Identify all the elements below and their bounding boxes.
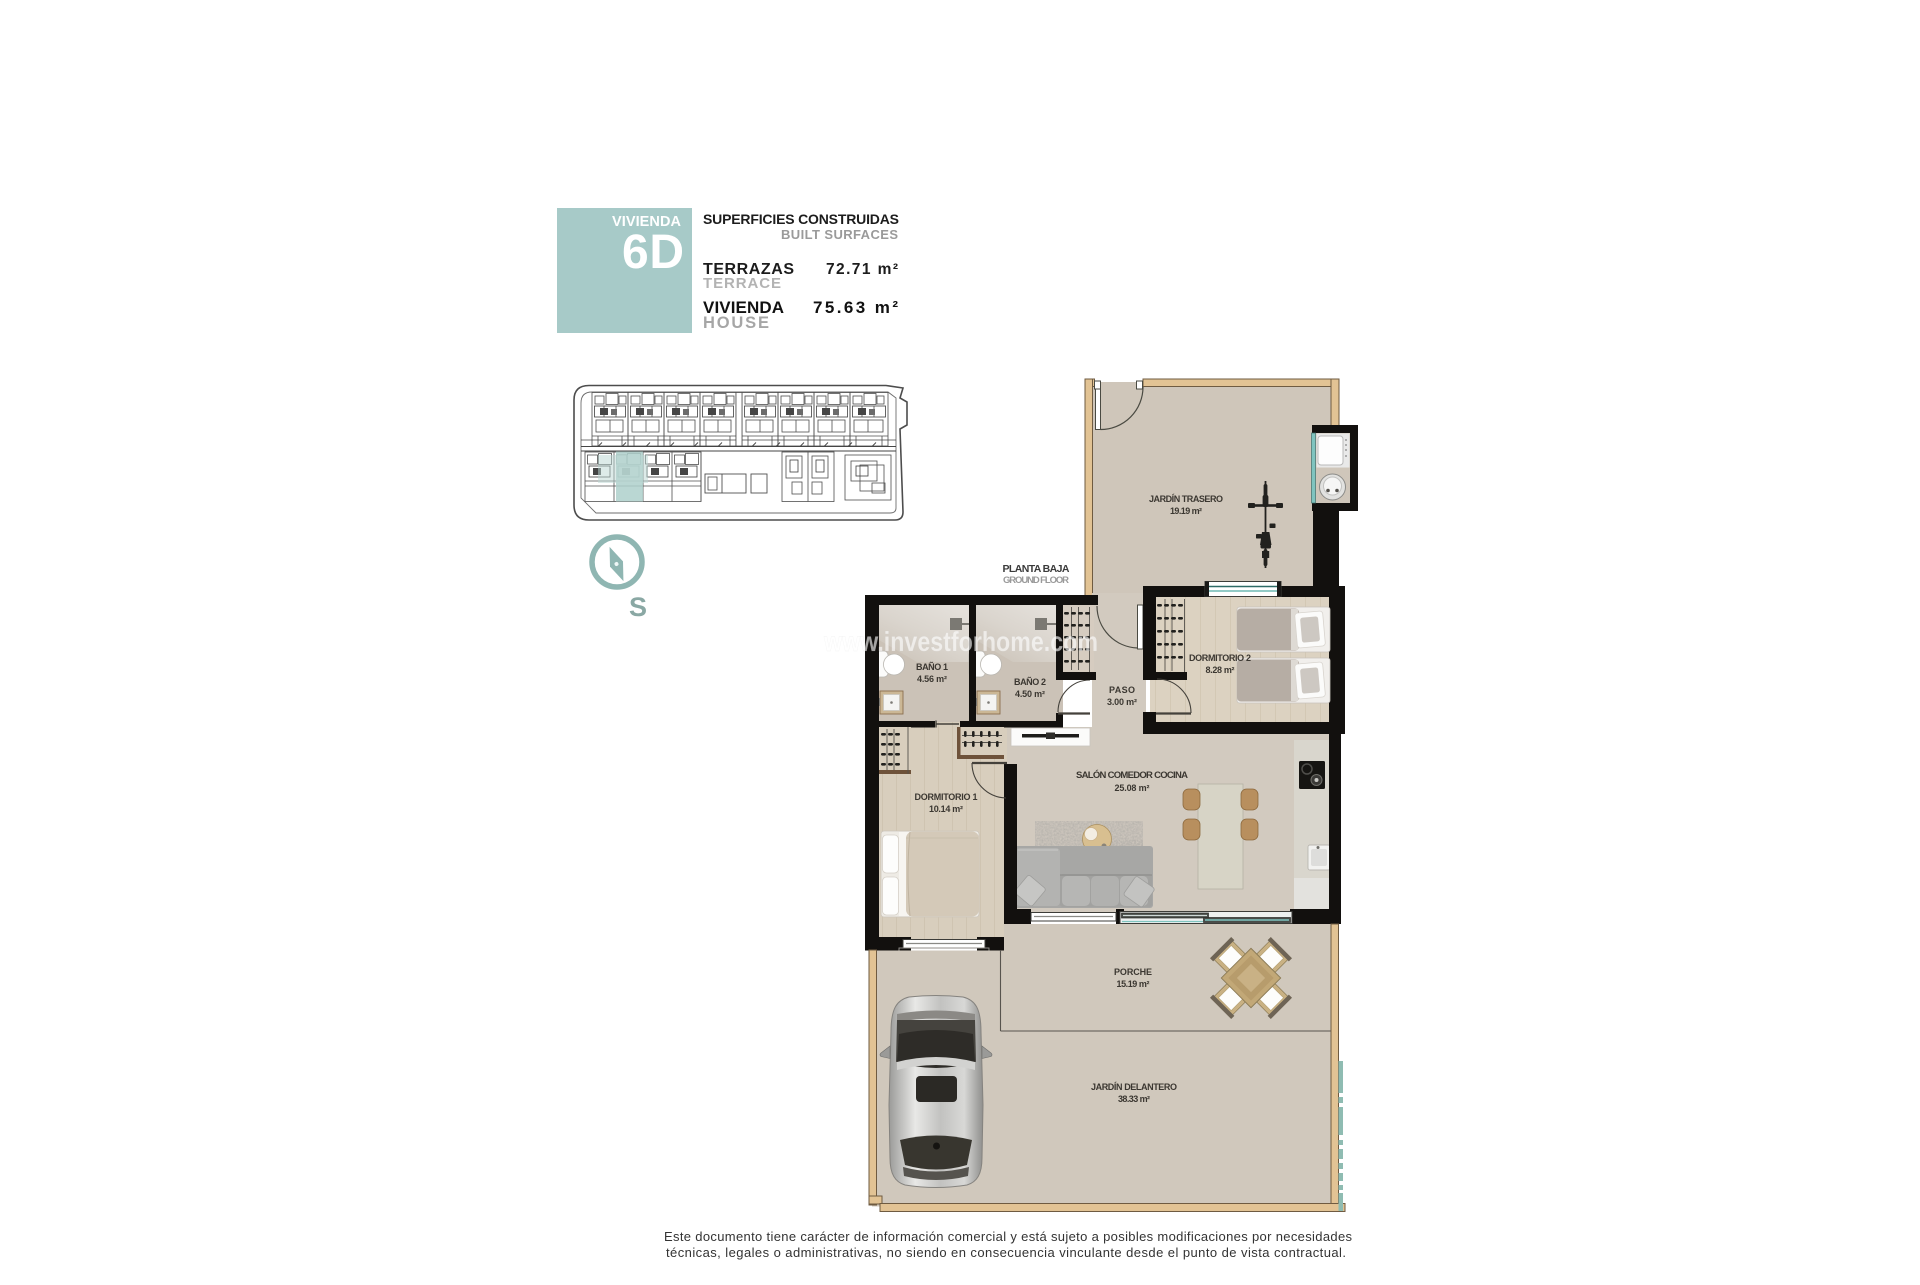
svg-text:www.investforhome.com: www.investforhome.com — [823, 626, 1098, 657]
svg-text:TERRACE: TERRACE — [703, 275, 781, 292]
svg-text:HOUSE: HOUSE — [703, 314, 769, 332]
svg-text:PASO: PASO — [1109, 685, 1135, 695]
svg-text:VIVIENDA: VIVIENDA — [703, 298, 784, 317]
svg-text:3.00 m²: 3.00 m² — [1107, 697, 1137, 707]
svg-text:BUILT SURFACES: BUILT SURFACES — [781, 227, 898, 242]
svg-text:10.14 m²: 10.14 m² — [929, 804, 963, 814]
svg-text:BAÑO 2: BAÑO 2 — [1014, 677, 1046, 687]
svg-text:15.19 m²: 15.19 m² — [1117, 979, 1150, 989]
svg-text:DORMITORIO 1: DORMITORIO 1 — [915, 792, 978, 802]
svg-text:6D: 6D — [622, 226, 684, 279]
svg-text:técnicas, legales o administra: técnicas, legales o administrativas, no … — [666, 1245, 1346, 1260]
svg-text:S: S — [629, 592, 647, 622]
svg-text:GROUND FLOOR: GROUND FLOOR — [1003, 575, 1069, 586]
svg-text:SALÓN COMEDOR COCINA: SALÓN COMEDOR COCINA — [1076, 769, 1188, 781]
svg-text:4.50 m²: 4.50 m² — [1015, 689, 1045, 699]
svg-text:JARDÍN TRASERO: JARDÍN TRASERO — [1149, 494, 1223, 504]
svg-text:25.08 m²: 25.08 m² — [1115, 783, 1150, 793]
svg-text:SUPERFICIES CONSTRUIDAS: SUPERFICIES CONSTRUIDAS — [703, 211, 899, 227]
svg-text:PORCHE: PORCHE — [1114, 967, 1152, 977]
svg-text:JARDÍN DELANTERO: JARDÍN DELANTERO — [1091, 1082, 1177, 1092]
svg-text:38.33 m²: 38.33 m² — [1118, 1094, 1150, 1104]
svg-text:8.28 m²: 8.28 m² — [1206, 665, 1235, 675]
svg-text:PLANTA BAJA: PLANTA BAJA — [1003, 563, 1070, 575]
svg-text:19.19 m²: 19.19 m² — [1170, 506, 1202, 516]
svg-text:Este documento tiene carácter: Este documento tiene carácter de informa… — [664, 1229, 1353, 1244]
svg-text:BAÑO 1: BAÑO 1 — [916, 662, 948, 672]
svg-text:72.71 m²: 72.71 m² — [826, 261, 898, 278]
svg-text:DORMITORIO 2: DORMITORIO 2 — [1189, 653, 1251, 663]
svg-text:75.63 m²: 75.63 m² — [813, 298, 898, 317]
svg-text:4.56 m²: 4.56 m² — [917, 674, 947, 684]
